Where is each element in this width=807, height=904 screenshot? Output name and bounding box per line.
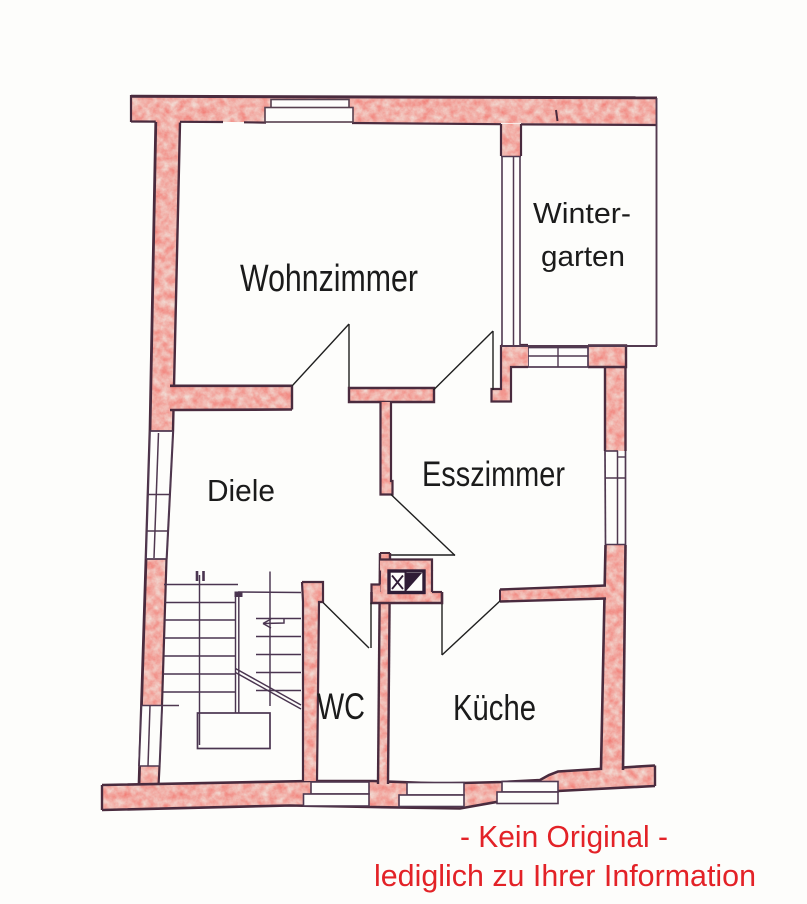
svg-text:WC: WC [317,686,365,727]
svg-text:Esszimmer: Esszimmer [422,455,565,494]
svg-text:garten: garten [541,241,625,273]
svg-text:Winter-: Winter- [533,198,631,230]
svg-text:Diele: Diele [207,473,275,508]
svg-text:Küche: Küche [453,687,536,728]
svg-text:Wohnzimmer: Wohnzimmer [240,258,418,300]
svg-text:lediglich zu Ihrer Information: lediglich zu Ihrer Information [374,858,756,893]
svg-text:- Kein Original -: - Kein Original - [460,819,668,854]
